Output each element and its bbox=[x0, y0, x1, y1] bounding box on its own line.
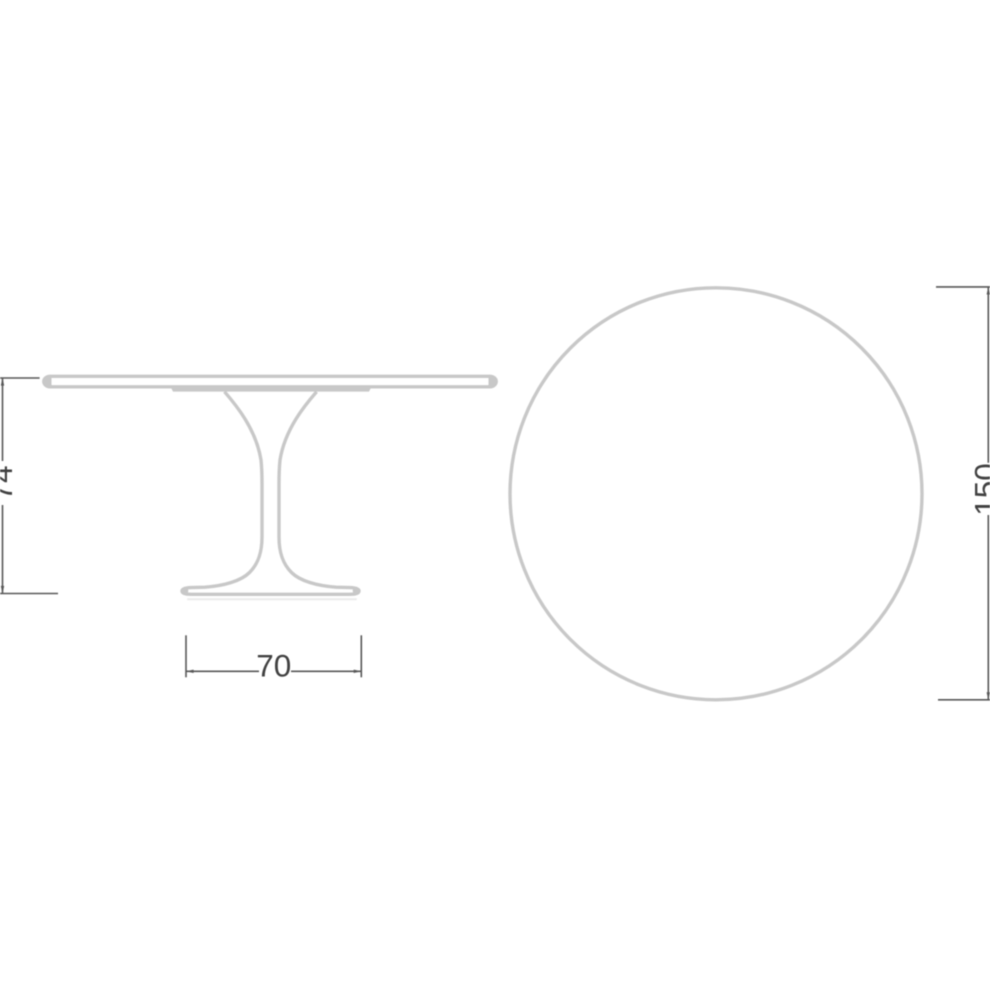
svg-text:74: 74 bbox=[0, 465, 19, 500]
svg-text:70: 70 bbox=[256, 647, 291, 683]
svg-text:150: 150 bbox=[968, 463, 990, 516]
